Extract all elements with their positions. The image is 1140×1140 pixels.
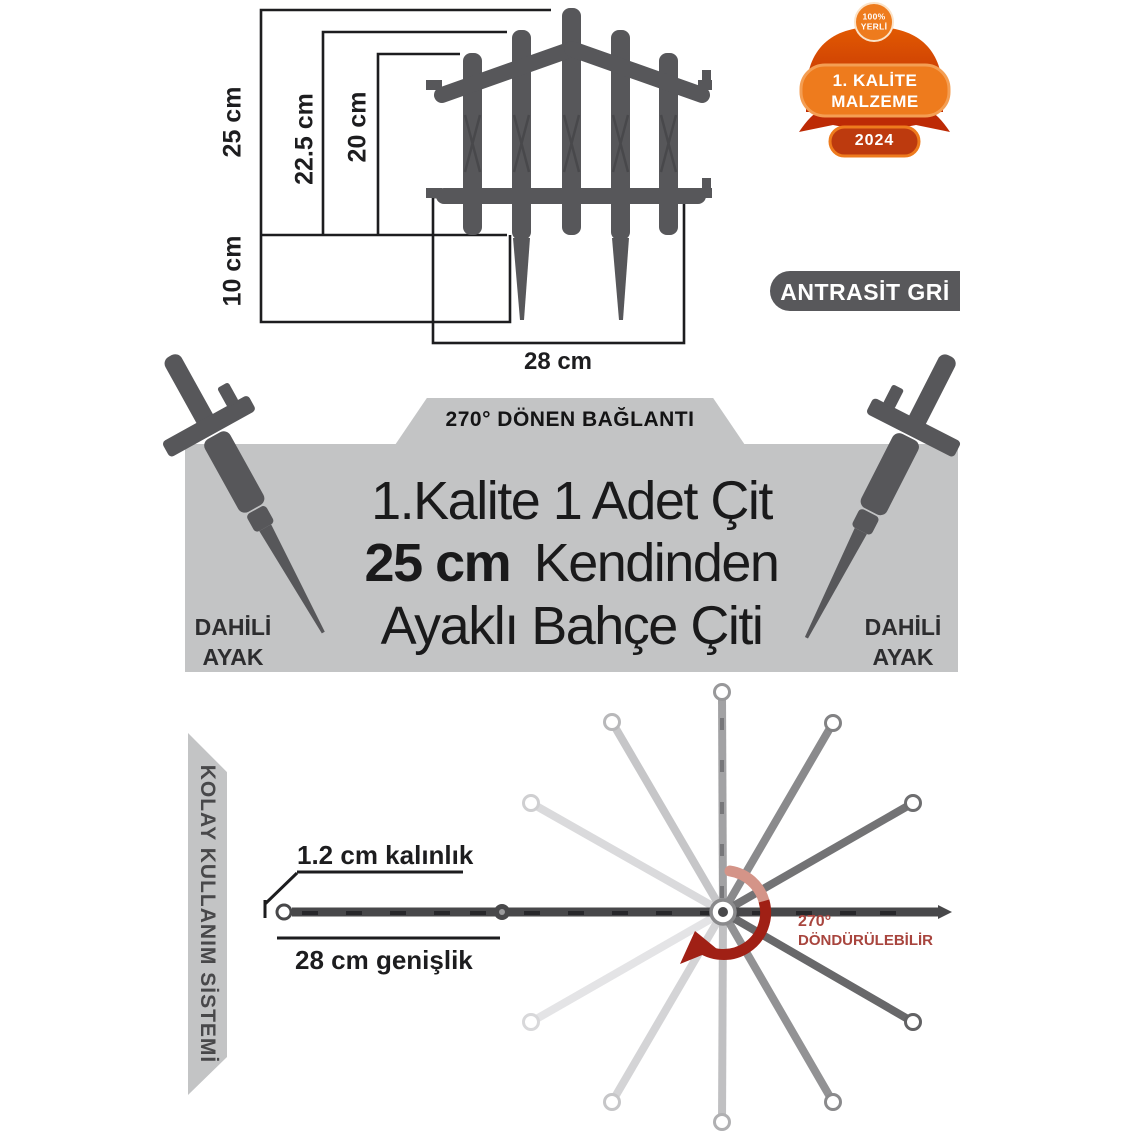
dimension-label-22-5cm: 22.5 cm bbox=[291, 93, 320, 185]
badge-circle-label: 100% YERLİ bbox=[861, 13, 888, 32]
right-leg-line2: AYAK bbox=[833, 642, 973, 672]
bar-end-ring-icon bbox=[277, 905, 291, 919]
rotation-note: 270° DÖNDÜRÜLEBİLİR bbox=[798, 912, 933, 950]
dimension-label-28cm: 28 cm bbox=[524, 348, 592, 376]
usage-ribbon-label: KOLAY KULLANIM SİSTEMİ bbox=[195, 765, 219, 1064]
product-title-line2: 25 cm Kendinden bbox=[185, 532, 958, 594]
badge-plaque-line1: 1. KALİTE bbox=[801, 70, 949, 91]
banner-tab-label: 270° DÖNEN BAĞLANTI bbox=[395, 408, 745, 432]
left-leg-line2: AYAK bbox=[163, 642, 303, 672]
badge-circle-line2: YERLİ bbox=[861, 22, 888, 32]
product-title-line2-bold: 25 cm bbox=[365, 533, 511, 593]
product-infographic: 25 cm 22.5 cm 20 cm 10 cm 28 cm 100% YER… bbox=[0, 0, 1140, 1140]
fence-illustration bbox=[426, 8, 712, 320]
left-leg-line1: DAHİLİ bbox=[163, 612, 303, 642]
bar-arrow-tip-icon bbox=[938, 905, 952, 919]
rotation-text: DÖNDÜRÜLEBİLİR bbox=[798, 931, 933, 950]
badge-plaque-line2: MALZEME bbox=[801, 91, 949, 112]
right-leg-line1: DAHİLİ bbox=[833, 612, 973, 642]
width-label: 28 cm genişlik bbox=[295, 945, 473, 976]
right-leg-label: DAHİLİ AYAK bbox=[833, 612, 973, 672]
left-leg-label: DAHİLİ AYAK bbox=[163, 612, 303, 672]
dimension-label-20cm: 20 cm bbox=[344, 92, 373, 163]
color-label: ANTRASİT GRİ bbox=[770, 279, 960, 306]
thickness-label: 1.2 cm kalınlık bbox=[297, 840, 473, 871]
badge-year: 2024 bbox=[830, 132, 919, 150]
rotation-hub-icon bbox=[711, 900, 735, 924]
label-leader-lines bbox=[265, 872, 500, 938]
product-title-line1: 1.Kalite 1 Adet Çit bbox=[185, 470, 958, 532]
dimension-label-10cm: 10 cm bbox=[219, 236, 248, 307]
dimension-label-25cm: 25 cm bbox=[219, 87, 248, 158]
badge-plaque-label: 1. KALİTE MALZEME bbox=[801, 70, 949, 112]
product-title-line2-rest: Kendinden bbox=[534, 533, 779, 593]
rotation-degrees: 270° bbox=[798, 912, 933, 931]
